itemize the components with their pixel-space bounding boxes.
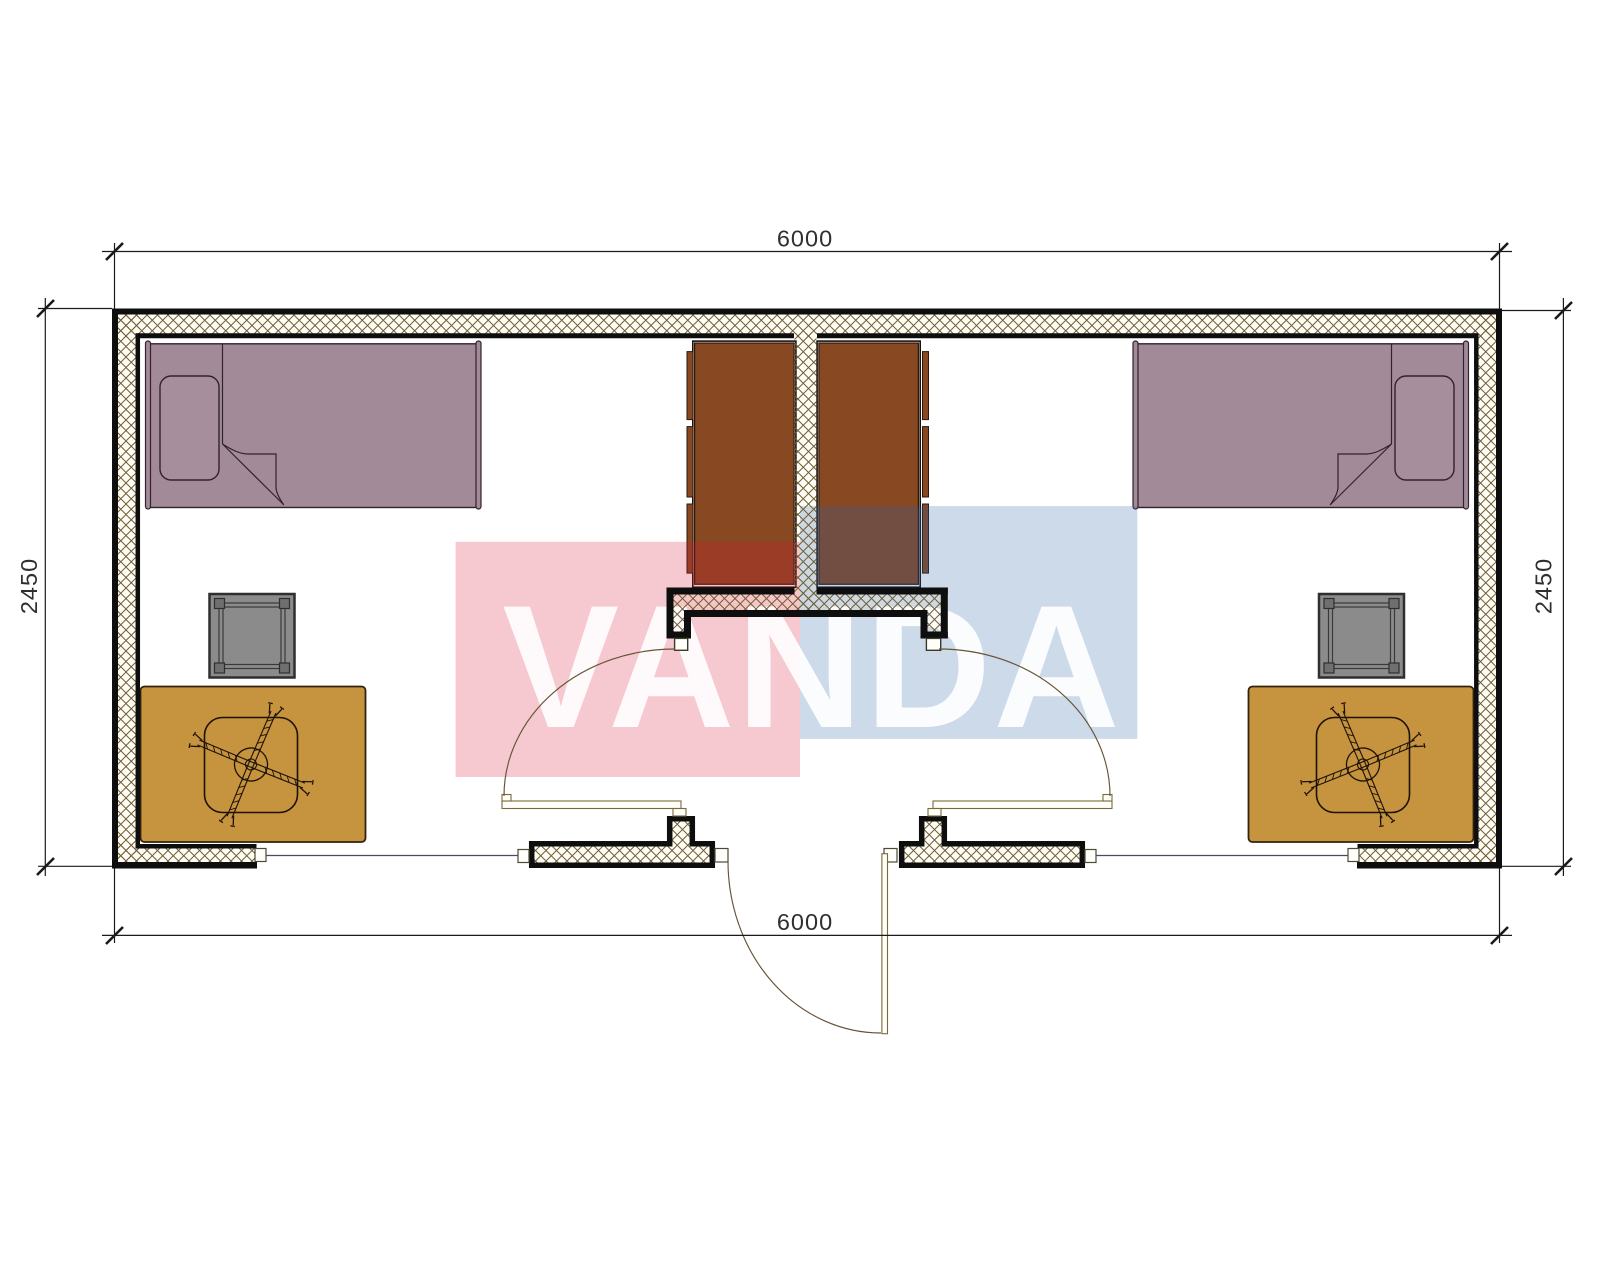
svg-text:6000: 6000 [777,909,833,935]
svg-text:6000: 6000 [777,226,833,252]
svg-text:2450: 2450 [1531,558,1557,614]
svg-text:2450: 2450 [16,558,42,614]
